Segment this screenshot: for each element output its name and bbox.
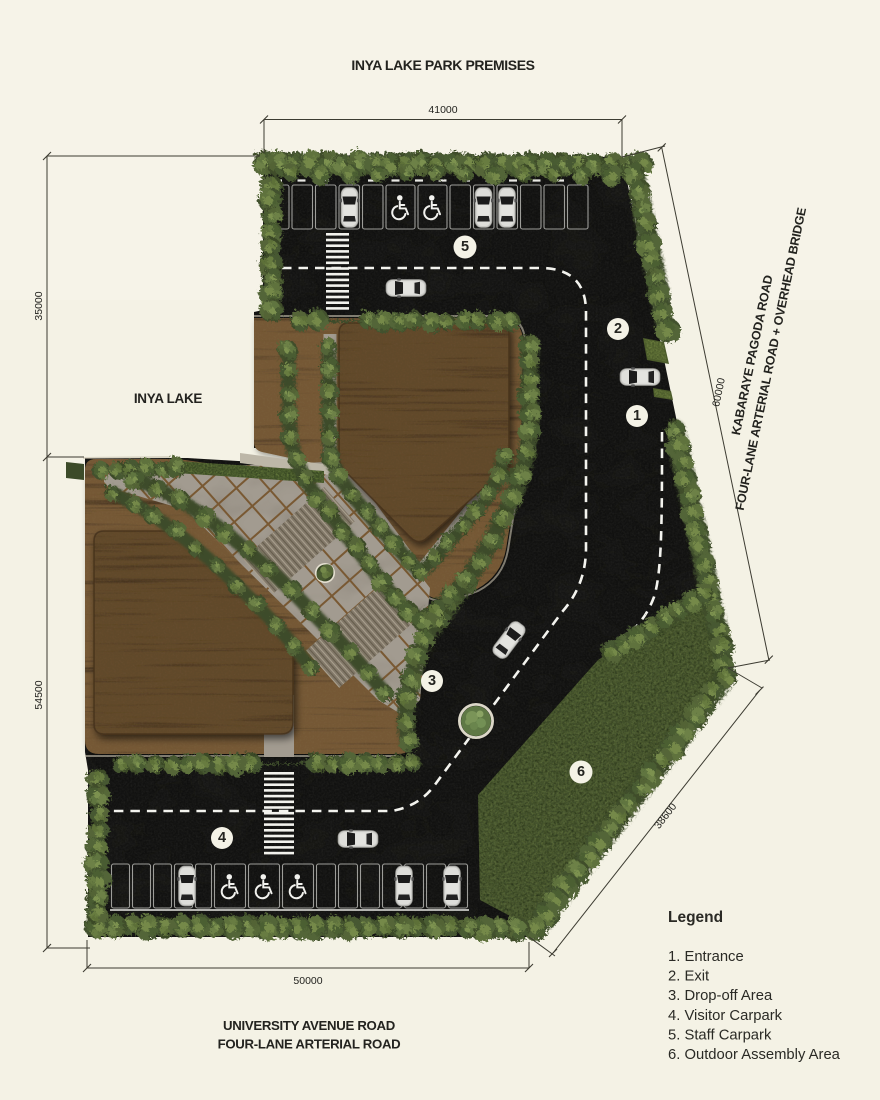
svg-text:4: 4 <box>218 830 226 846</box>
svg-text:INYA LAKE: INYA LAKE <box>134 391 203 406</box>
svg-text:1. Entrance: 1. Entrance <box>668 949 744 965</box>
svg-text:3. Drop-off Area: 3. Drop-off Area <box>668 988 773 1004</box>
svg-text:41000: 41000 <box>428 104 457 116</box>
svg-text:5: 5 <box>461 239 469 255</box>
svg-text:1: 1 <box>633 408 641 424</box>
svg-text:5. Staff Carpark: 5. Staff Carpark <box>668 1027 772 1043</box>
svg-text:6: 6 <box>577 764 585 780</box>
svg-text:6. Outdoor Assembly Area: 6. Outdoor Assembly Area <box>668 1047 841 1063</box>
svg-text:FOUR-LANE ARTERIAL ROAD: FOUR-LANE ARTERIAL ROAD <box>218 1037 401 1052</box>
svg-text:35000: 35000 <box>33 291 45 320</box>
svg-text:50000: 50000 <box>293 975 322 987</box>
svg-text:UNIVERSITY AVENUE ROAD: UNIVERSITY AVENUE ROAD <box>223 1018 395 1033</box>
svg-text:INYA LAKE PARK PREMISES: INYA LAKE PARK PREMISES <box>351 57 534 73</box>
svg-text:Legend: Legend <box>668 909 723 926</box>
svg-text:54500: 54500 <box>33 680 45 709</box>
svg-text:2. Exit: 2. Exit <box>668 969 709 985</box>
svg-text:3: 3 <box>428 673 436 689</box>
svg-text:4. Visitor Carpark: 4. Visitor Carpark <box>668 1008 783 1024</box>
svg-text:2: 2 <box>614 321 622 337</box>
